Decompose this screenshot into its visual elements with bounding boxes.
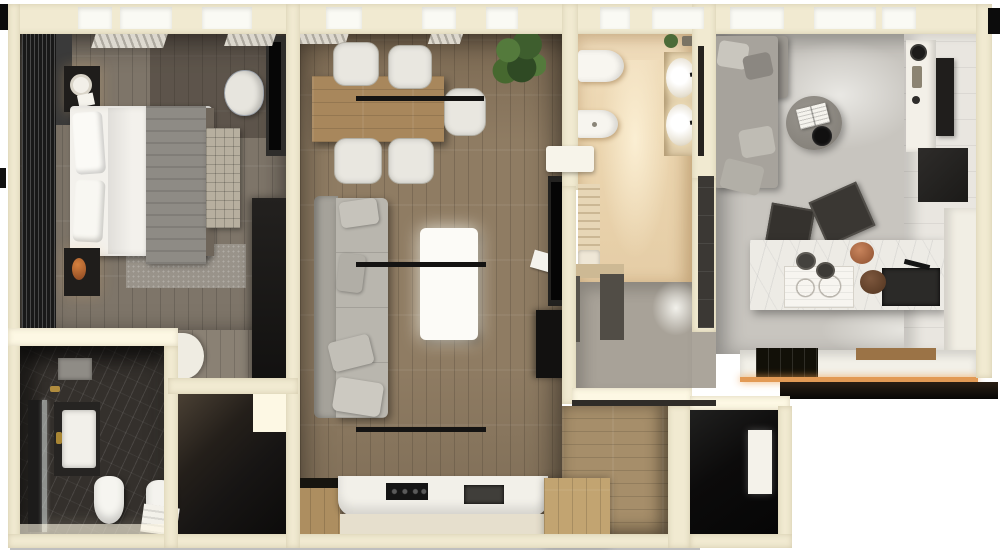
bath-sink — [62, 410, 96, 468]
window — [120, 7, 172, 29]
track-light-bar — [356, 262, 486, 267]
track-light-bar — [356, 96, 484, 101]
kitchen-sink — [464, 485, 504, 504]
dining-chair — [388, 138, 434, 184]
cutting-board — [856, 348, 936, 360]
exterior-mark — [988, 8, 1000, 34]
wall-hung-bidet — [576, 110, 618, 138]
sofa-pillow — [338, 197, 379, 228]
dining-chair — [333, 42, 379, 86]
sofa-pillow — [336, 253, 366, 294]
copper-bowl — [850, 242, 874, 264]
track-light-bar — [356, 427, 486, 432]
dining-chair — [334, 138, 382, 184]
exterior-mark — [0, 168, 6, 188]
hall-step-shadow — [572, 400, 716, 406]
coffee-table — [420, 228, 478, 340]
window — [882, 7, 916, 29]
open-door-leaf — [546, 146, 594, 172]
black-tray — [812, 126, 832, 146]
bidet-drain-dot — [592, 122, 597, 127]
bathroom-beige-glow — [600, 60, 670, 260]
island-sink — [882, 268, 940, 306]
studio-bottom-black-band — [780, 382, 998, 399]
bedroom-chair — [224, 70, 264, 116]
right-column-white — [944, 208, 976, 354]
shelf-items — [912, 66, 922, 88]
bath-lit-edge — [20, 524, 164, 534]
wall-corridor-entry — [668, 406, 690, 548]
bath-faucet-gold — [56, 432, 62, 444]
studio-sofa-pillow — [738, 125, 776, 158]
wall-bottom — [8, 534, 700, 548]
kitchen-cabinet-left — [296, 488, 340, 538]
pillow — [72, 179, 105, 242]
exterior-mark — [0, 4, 8, 30]
dining-chair — [388, 45, 432, 89]
window — [730, 7, 784, 29]
wall-bedroom-living — [286, 4, 300, 548]
window — [202, 7, 252, 29]
shelf-knob — [912, 96, 920, 104]
laundry-cabinet — [600, 274, 624, 340]
flowers-orange — [72, 258, 86, 280]
small-plate — [816, 262, 835, 279]
tufted-bench — [206, 128, 240, 228]
shower-valve-gold — [50, 386, 60, 392]
kitchen-counter — [338, 476, 548, 516]
brown-bowl — [860, 270, 886, 294]
window — [78, 7, 112, 29]
louvered-wardrobe — [22, 10, 56, 332]
living-tv-screen — [551, 182, 562, 300]
wall-hung-toilet — [578, 50, 624, 82]
floorplan-render — [0, 0, 1000, 550]
small-plate — [796, 252, 816, 270]
window — [600, 7, 630, 29]
mirror-strip — [698, 46, 704, 156]
window — [652, 7, 704, 29]
window — [326, 7, 362, 29]
wall-bath2-right — [692, 4, 716, 182]
gray-blanket — [146, 106, 206, 264]
sofa-pillow — [332, 376, 385, 417]
wall-clock — [910, 44, 927, 61]
dark-wall-panel — [936, 58, 954, 136]
hallway-gray-ext — [692, 332, 716, 388]
tall-wardrobe — [252, 198, 286, 382]
wall-cabinet-dark — [918, 148, 968, 202]
wall-right — [976, 4, 992, 378]
window — [422, 7, 456, 29]
wall-entry-bottom — [690, 534, 792, 548]
studio-left-wardrobe-top — [698, 176, 714, 328]
shower-dark-panel — [28, 400, 42, 532]
wall-bedroom-bath — [8, 328, 178, 346]
toilet — [94, 476, 124, 524]
black-hob — [756, 348, 818, 378]
shower-head — [58, 358, 92, 380]
window — [486, 7, 518, 29]
wall-bath-closet — [164, 346, 178, 548]
bedroom-tv-screen — [269, 42, 281, 150]
wall-entry-right — [778, 406, 792, 548]
shelf-plant — [664, 34, 678, 48]
wall-living-hall — [562, 186, 576, 404]
pillow — [72, 111, 106, 175]
sofa-back — [314, 196, 338, 418]
duvet-fold — [108, 108, 148, 254]
entry-door-mat — [748, 430, 772, 494]
window — [814, 7, 876, 29]
wall-left — [8, 4, 20, 548]
potted-plant — [492, 30, 546, 88]
wall-annex-closet — [168, 378, 298, 394]
cooktop — [386, 483, 428, 500]
shower-glass — [42, 400, 47, 532]
